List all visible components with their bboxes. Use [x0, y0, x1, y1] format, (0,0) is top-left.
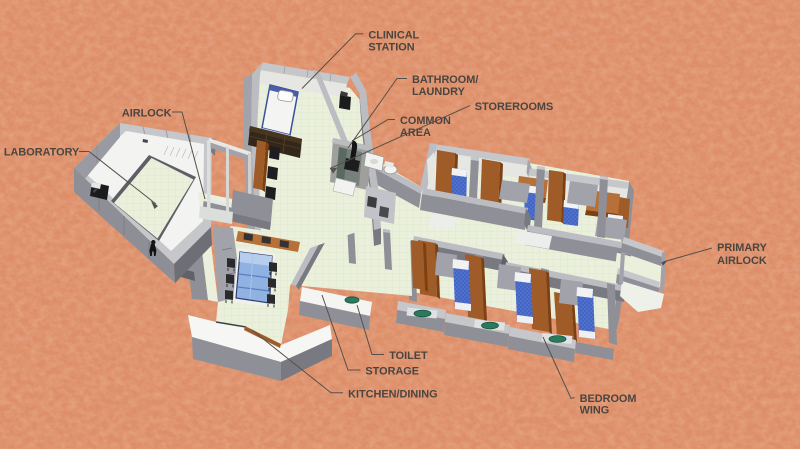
svg-text:BATHROOM/: BATHROOM/	[412, 74, 478, 86]
svg-text:TOILET: TOILET	[389, 350, 428, 362]
svg-text:STOREROOMS: STOREROOMS	[475, 101, 553, 113]
svg-text:STATION: STATION	[368, 41, 414, 53]
svg-text:AIRLOCK: AIRLOCK	[122, 108, 172, 120]
svg-text:BEDROOM: BEDROOM	[580, 393, 637, 405]
svg-text:KITCHEN/DINING: KITCHEN/DINING	[348, 388, 438, 400]
svg-text:CLINICAL: CLINICAL	[368, 30, 419, 42]
svg-text:WING: WING	[580, 405, 610, 417]
svg-text:AIRLOCK: AIRLOCK	[717, 255, 767, 267]
svg-text:LABORATORY: LABORATORY	[4, 147, 80, 159]
svg-text:AREA: AREA	[400, 127, 431, 139]
svg-text:STORAGE: STORAGE	[365, 366, 419, 378]
svg-text:PRIMARY: PRIMARY	[717, 242, 768, 254]
svg-text:LAUNDRY: LAUNDRY	[412, 86, 466, 98]
